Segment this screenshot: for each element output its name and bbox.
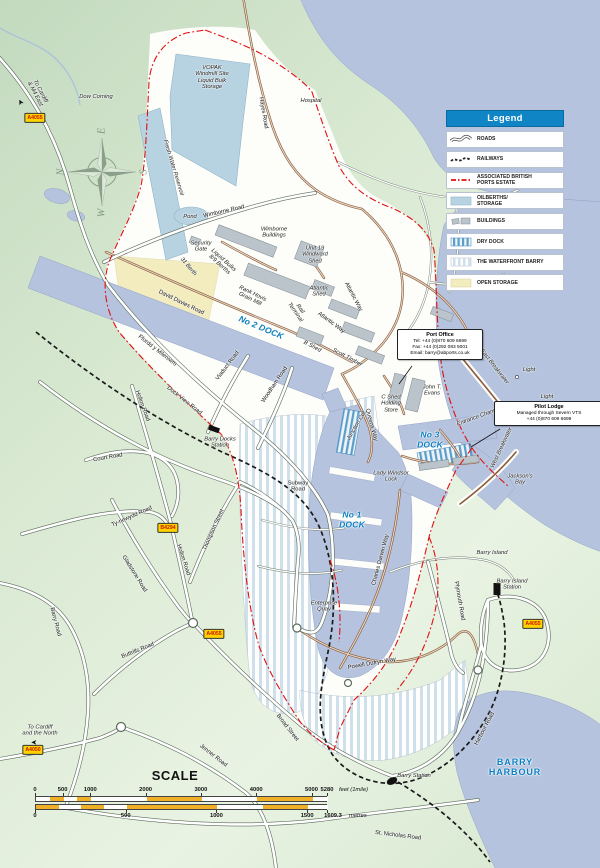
road-badge-a4055: A4055 <box>522 619 543 629</box>
legend-item-dry-dock: DRY DOCK <box>446 233 564 250</box>
legend-items: ROADSRAILWAYSASSOCIATED BRITISH PORTS ES… <box>446 131 564 292</box>
scale-feet-suffix: feet (1mile) <box>339 787 368 793</box>
road-badge-a4055: A4055 <box>203 629 224 639</box>
legend-item-label: THE WATERFRONT BARRY <box>477 259 544 265</box>
legend-item-label: OPEN STORAGE <box>477 280 518 286</box>
legend-item-buildings: BUILDINGS <box>446 213 564 230</box>
legend-item-roads: ROADS <box>446 131 564 148</box>
port-office-callout: Port Office Tel: +44 (0)870 609 6699Fax:… <box>397 329 483 360</box>
pilot-lodge-title: Pilot Lodge <box>497 404 600 411</box>
estate-swatch-icon <box>449 175 473 185</box>
pilot-lodge-callout: Pilot Lodge Managed through Severn VTS+4… <box>494 401 600 426</box>
scale-bar-strip <box>35 804 327 810</box>
legend-item-label: OILBERTHS/ STORAGE <box>477 195 508 207</box>
scale-metre-suffix: metres <box>349 813 367 819</box>
barry-island-station-marker <box>494 583 501 595</box>
scale-tick-label: 1500 <box>301 813 314 819</box>
drydock-swatch-icon <box>449 237 473 247</box>
legend-item-the-waterfront-barry: THE WATERFRONT BARRY <box>446 254 564 271</box>
road-badge-a4050: A4050 <box>22 745 43 755</box>
legend-item-label: RAILWAYS <box>477 156 503 162</box>
legend-item-open-storage: OPEN STORAGE <box>446 274 564 291</box>
barry-harbour <box>454 691 600 868</box>
openstorage-swatch-icon <box>449 278 473 288</box>
light-marker <box>515 375 518 378</box>
scale-title: SCALE <box>152 768 199 783</box>
port-office-line: Email: barry@abports.co.uk <box>400 351 480 357</box>
pilot-lodge-line: +44 (0)870 609 6699 <box>497 417 600 423</box>
road-swatch-icon <box>449 134 473 144</box>
legend-panel: Legend ROADSRAILWAYSASSOCIATED BRITISH P… <box>446 110 564 291</box>
railway-swatch-icon <box>449 155 473 165</box>
legend-item-label: ASSOCIATED BRITISH PORTS ESTATE <box>477 174 532 186</box>
legend-item-oilberths-storage: OILBERTHS/ STORAGE <box>446 192 564 209</box>
waterfront-swatch-icon <box>449 257 473 267</box>
scale-tick-label: 0 <box>33 813 36 819</box>
scale-bar-strip <box>35 796 327 802</box>
legend-item-label: ROADS <box>477 136 495 142</box>
compass-rose <box>68 138 136 206</box>
port-office-title: Port Office <box>400 332 480 339</box>
legend-item-associated-british-ports-estate: ASSOCIATED BRITISH PORTS ESTATE <box>446 172 564 189</box>
road-badge-a4055: A4055 <box>24 113 45 123</box>
scale-tick-label: 500 <box>121 813 131 819</box>
legend-title: Legend <box>446 110 564 127</box>
storage-swatch-icon <box>449 196 473 206</box>
scale-tick-label: 1609.3 <box>324 813 342 819</box>
scale-tick-label: 1000 <box>210 813 223 819</box>
legend-item-railways: RAILWAYS <box>446 151 564 168</box>
legend-item-label: DRY DOCK <box>477 239 504 245</box>
barry-docks-map: Dow CorningTo Cardiff & M4 East➤Hospital… <box>0 0 600 868</box>
legend-item-label: BUILDINGS <box>477 218 505 224</box>
buildings-swatch-icon <box>449 216 473 226</box>
road-badge-b4294: B4294 <box>157 523 178 533</box>
